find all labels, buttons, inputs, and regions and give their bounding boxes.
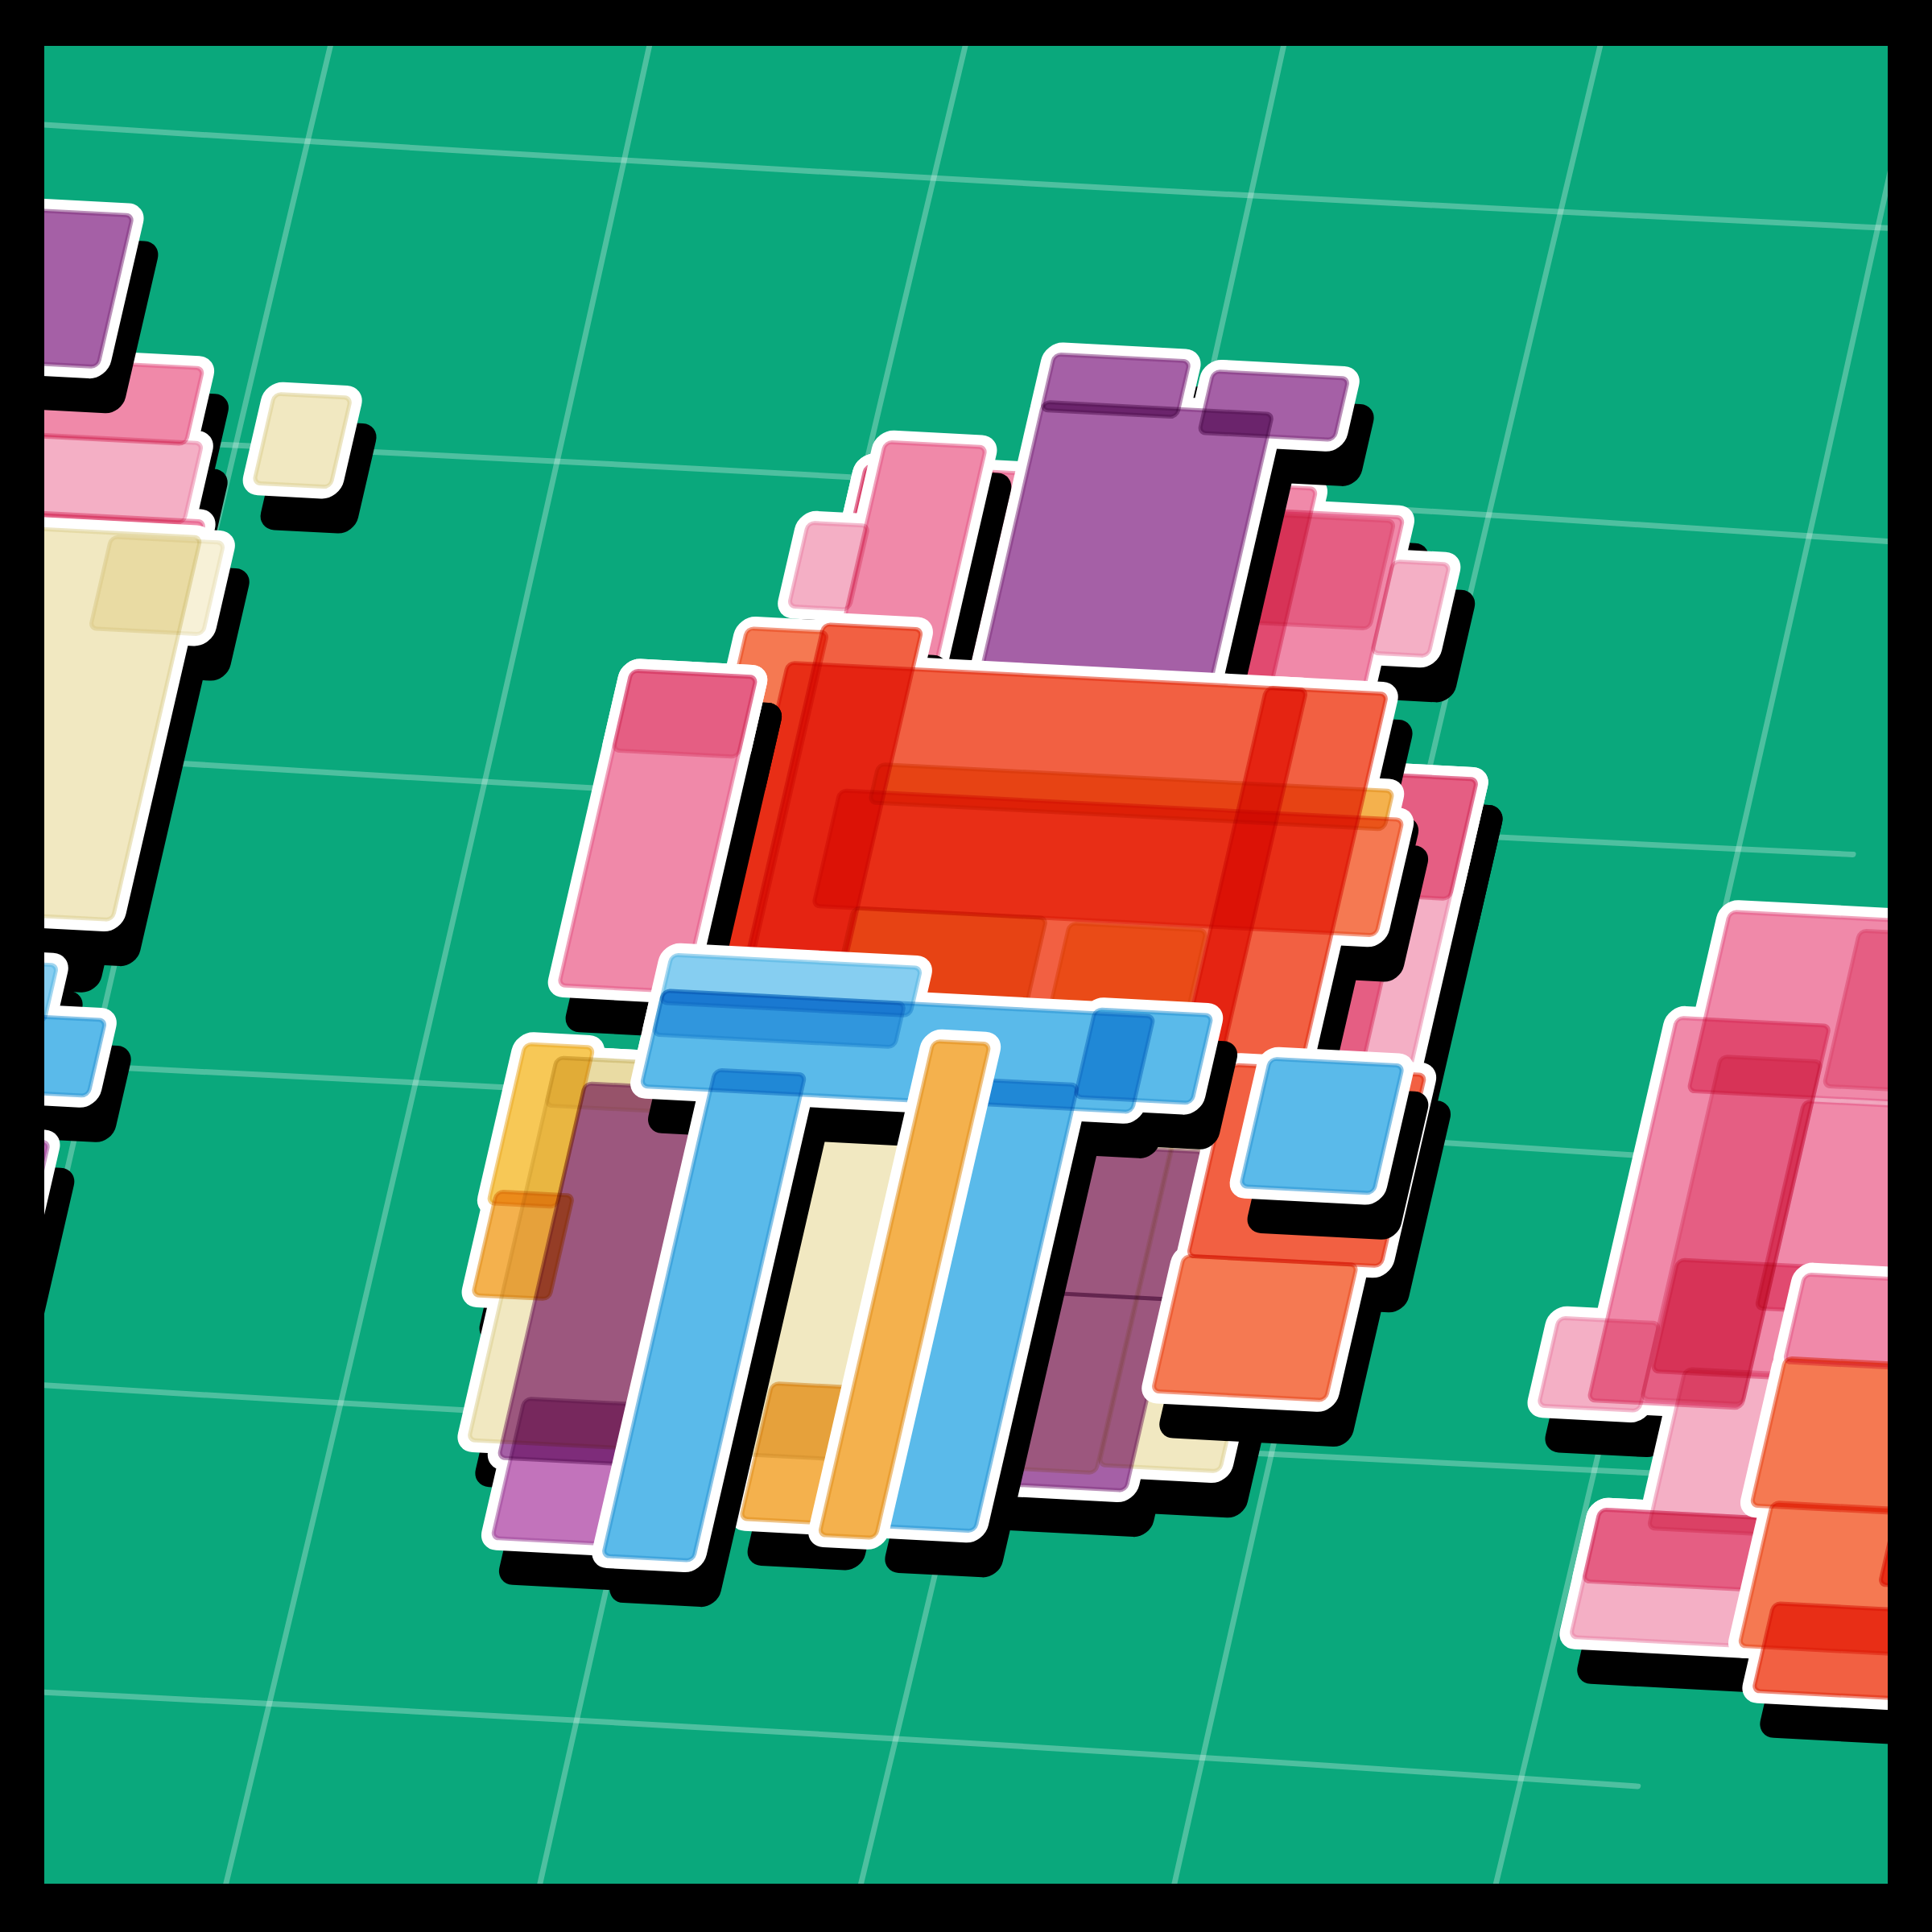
frame-bottom <box>0 1884 1932 1932</box>
block-red2 <box>1153 1256 1357 1400</box>
abstract-totem-artwork <box>0 0 1932 1932</box>
artwork-stage <box>0 0 1932 1932</box>
block-blue <box>1241 1059 1402 1193</box>
frame-top <box>0 0 1932 46</box>
block-creamLight <box>90 537 224 634</box>
block-blue <box>1075 1009 1212 1103</box>
cluster-body <box>254 394 350 487</box>
frame-left <box>0 0 44 1932</box>
block-pinkLight <box>613 671 757 757</box>
left-totem-cream-tab <box>246 394 374 523</box>
block-pinkLight <box>1538 1318 1659 1410</box>
frame-right <box>1888 0 1932 1932</box>
